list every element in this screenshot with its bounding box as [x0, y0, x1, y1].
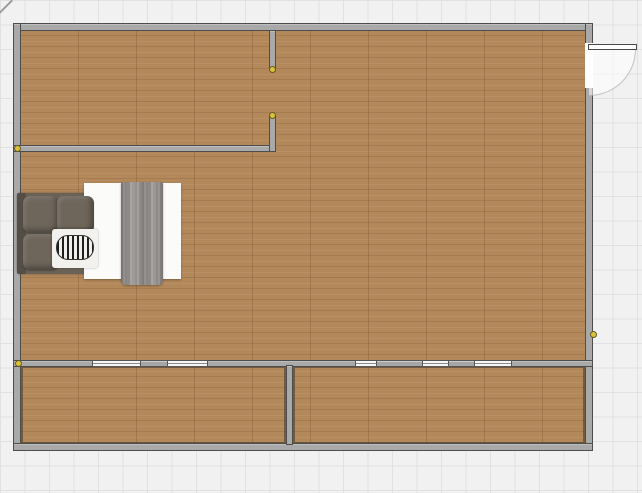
wall-divider-bottom[interactable] — [286, 365, 293, 445]
door-swing-arc — [589, 49, 636, 96]
door-leaf[interactable] — [588, 44, 637, 50]
wall-endpoint-handle-5[interactable] — [590, 331, 597, 338]
window-2[interactable] — [140, 360, 168, 367]
canvas-corner-artifact — [0, 0, 13, 14]
window-6[interactable] — [422, 360, 449, 367]
bed-pillow-2 — [57, 196, 94, 233]
wall-endpoint-handle-3[interactable] — [269, 112, 276, 119]
bed-bolster — [56, 235, 94, 260]
bed[interactable] — [17, 182, 181, 285]
wall-partition-vertical-lower[interactable] — [269, 115, 276, 152]
wall-endpoint-handle-1[interactable] — [14, 145, 21, 152]
wall-partition-top-room[interactable] — [13, 145, 276, 152]
bed-pillow-1 — [23, 196, 59, 233]
room-outline-2 — [293, 366, 585, 444]
wall-partition-vertical-upper[interactable] — [269, 30, 276, 70]
wall-endpoint-handle-4[interactable] — [15, 360, 22, 367]
room-outline-1 — [21, 366, 286, 444]
window-8[interactable] — [474, 360, 512, 367]
window-7[interactable] — [448, 360, 475, 367]
wall-outer-bottom[interactable] — [13, 443, 593, 451]
floorplan-canvas[interactable] — [0, 0, 642, 493]
wall-endpoint-handle-2[interactable] — [269, 66, 276, 73]
bed-blanket — [121, 182, 163, 285]
wall-outer-top[interactable] — [13, 23, 593, 31]
window-5[interactable] — [376, 360, 423, 367]
window-3[interactable] — [167, 360, 208, 367]
window-4[interactable] — [355, 360, 377, 367]
window-1[interactable] — [92, 360, 141, 367]
